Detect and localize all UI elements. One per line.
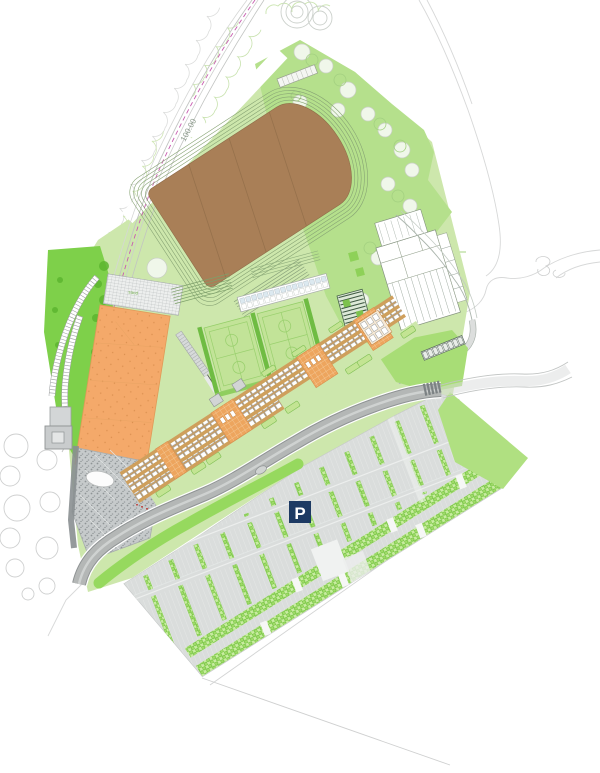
svg-text:P: P xyxy=(294,504,305,523)
